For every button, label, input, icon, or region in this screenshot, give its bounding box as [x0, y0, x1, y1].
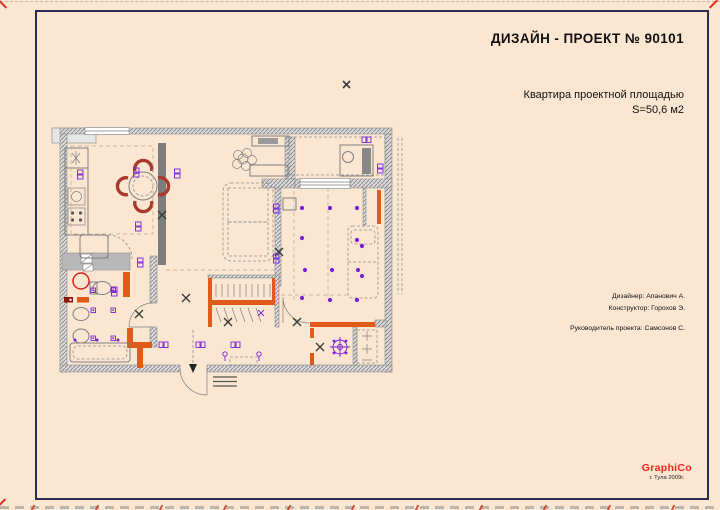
- walls: [60, 128, 392, 372]
- windows: [81, 128, 350, 272]
- fixture-labels: [78, 137, 384, 348]
- logo-text: GraphiCo: [642, 462, 692, 474]
- credit-designer: Дизайнер: Апанович А.: [570, 291, 685, 303]
- sconce-icons: [223, 352, 261, 365]
- credits-gap: [570, 314, 685, 323]
- logo-block: GraphiCo г. Тула 2009г.: [642, 462, 692, 481]
- plant: [233, 149, 257, 171]
- section-mark-icon: [341, 79, 352, 90]
- credit-constructor: Конструктор: Горохов Э.: [570, 303, 685, 315]
- page-bottom-cut-marks: [0, 503, 720, 510]
- kitchen-furniture: [65, 146, 169, 259]
- design-sheet: ДИЗАЙН - ПРОЕКТ № 90101 Квартира проектн…: [0, 0, 720, 510]
- floor-plan: [51, 124, 407, 400]
- chandelier-icon: [330, 337, 350, 357]
- credits-block: Дизайнер: Апанович А. Конструктор: Горох…: [570, 291, 685, 335]
- lighting-symbols: [74, 137, 384, 365]
- credit-manager: Руководитель проекта: Самсонов С.: [570, 323, 685, 335]
- project-subtitle: Квартира проектной площадью: [524, 89, 684, 101]
- project-area: S=50,6 м2: [632, 104, 684, 116]
- logo-city-year: г. Тула 2009г.: [642, 475, 692, 481]
- page-top-cut-marks: [0, 1, 720, 2]
- bathroom-fixtures: [70, 273, 130, 362]
- project-title: ДИЗАЙН - ПРОЕКТ № 90101: [491, 31, 684, 46]
